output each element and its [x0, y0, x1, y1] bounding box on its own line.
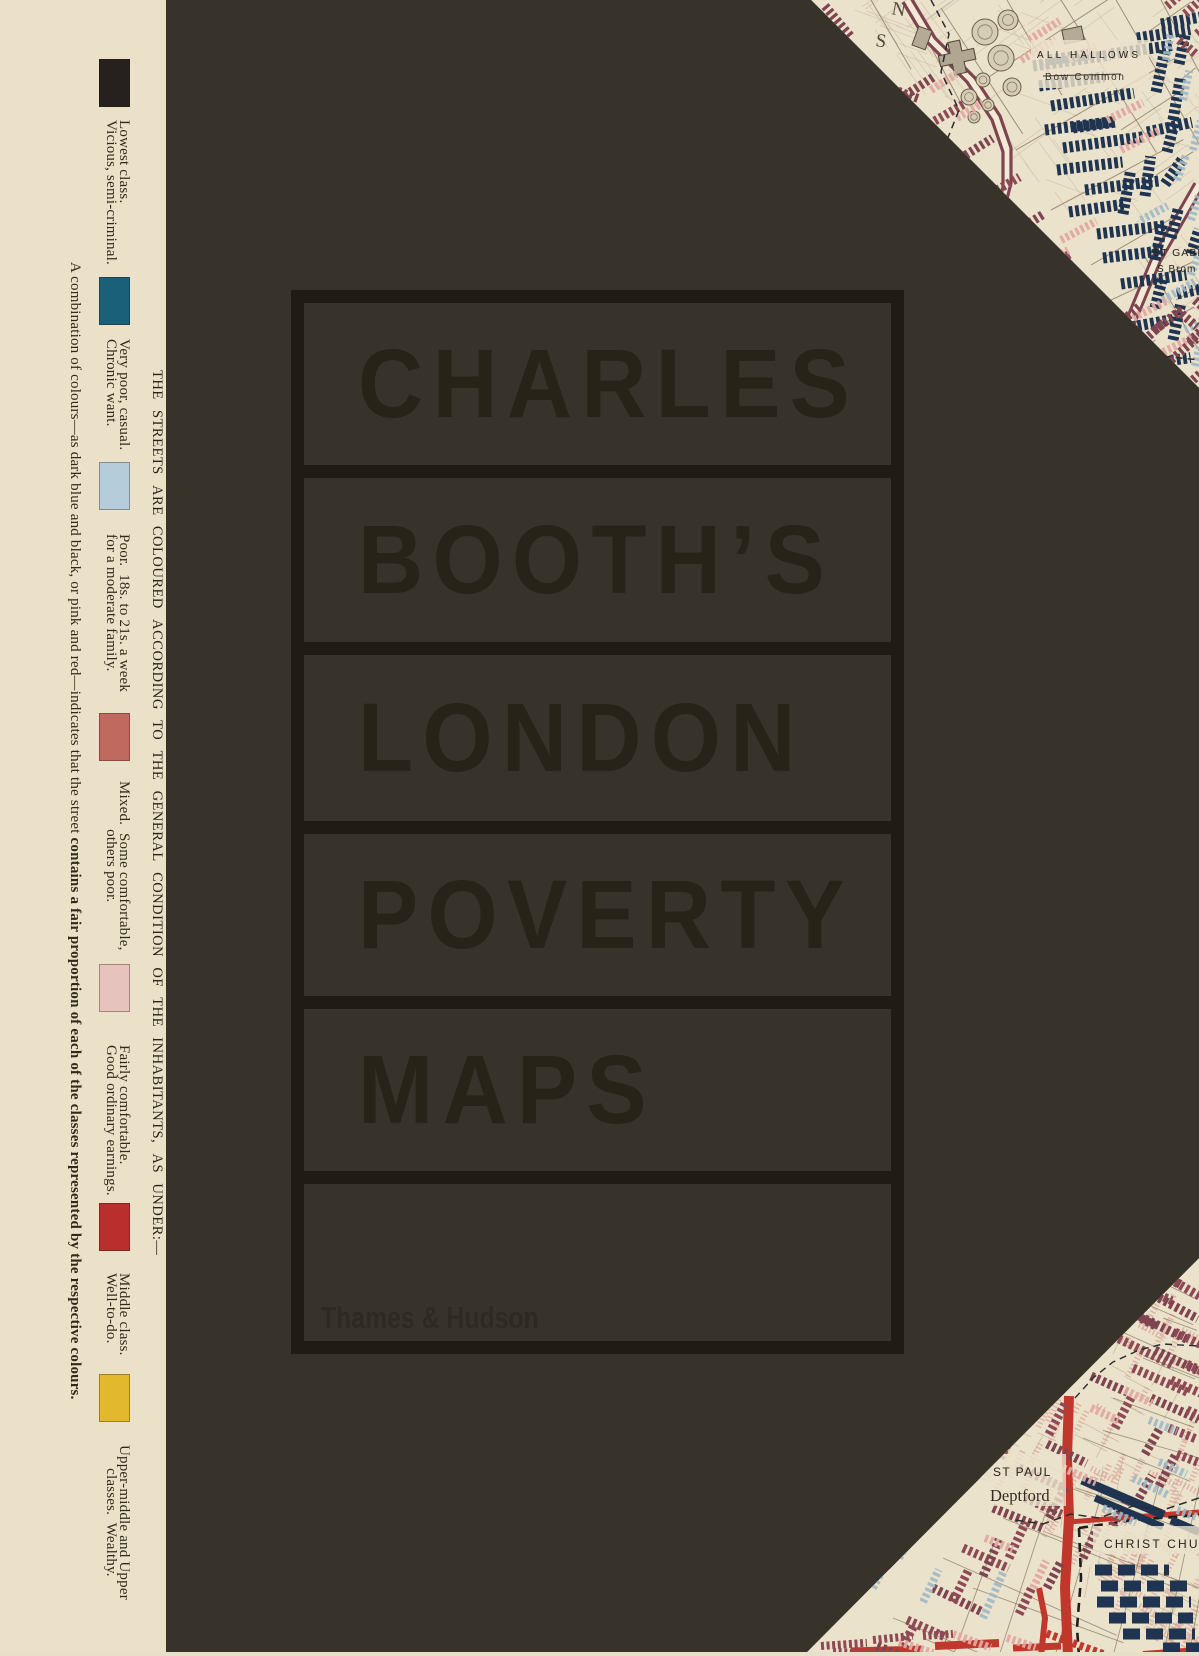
svg-text:ALL HALLOWS: ALL HALLOWS: [1037, 50, 1141, 61]
svg-text:S Brom: S Brom: [1157, 264, 1196, 275]
svg-text:Bow Common: Bow Common: [1045, 72, 1126, 83]
svg-text:CHRIST CHU: CHRIST CHU: [1104, 1537, 1199, 1551]
svg-text:I: I: [864, 62, 872, 84]
svg-text:Deptford: Deptford: [990, 1486, 1050, 1505]
svg-text:ST PAUL: ST PAUL: [993, 1465, 1052, 1479]
svg-text:O: O: [855, 92, 870, 114]
svg-text:ST GABR: ST GABR: [1153, 247, 1199, 259]
